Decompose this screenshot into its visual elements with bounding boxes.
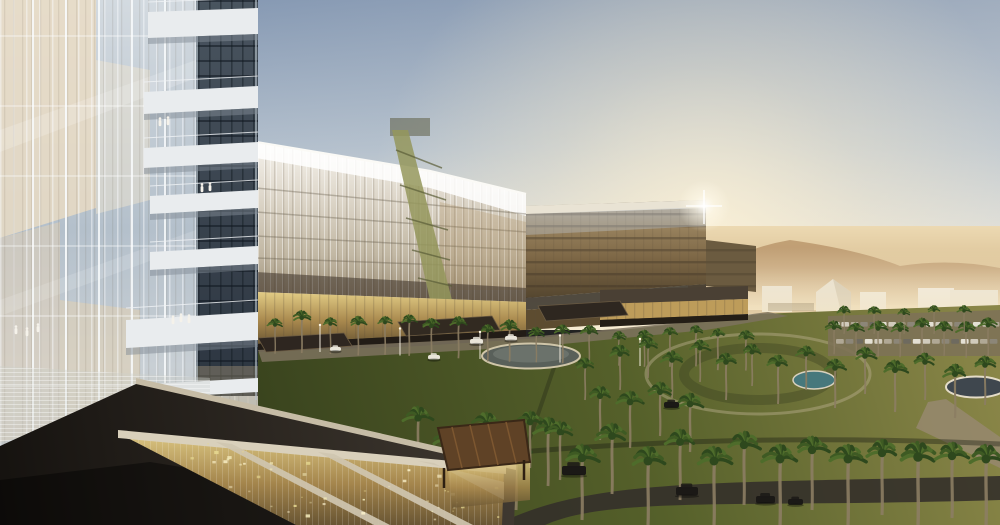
palm-trunk bbox=[895, 370, 896, 412]
person-figure bbox=[201, 183, 204, 192]
palm-crown-center bbox=[986, 323, 991, 328]
palm-trunk bbox=[925, 362, 926, 400]
figure-body bbox=[188, 317, 191, 323]
palm-trunk bbox=[560, 432, 561, 480]
palm-trunk bbox=[874, 312, 875, 334]
parked-car bbox=[903, 339, 911, 344]
light-pole-lamp bbox=[399, 327, 401, 329]
palm-crown-center bbox=[892, 367, 898, 373]
palm-crown-center bbox=[414, 414, 421, 421]
parked-car bbox=[913, 339, 921, 344]
skylight-sparkle bbox=[301, 497, 303, 498]
figure-body bbox=[26, 330, 29, 336]
skylight-sparkle bbox=[435, 484, 438, 486]
palm-crown-center bbox=[832, 365, 838, 371]
palm-crown-center bbox=[383, 320, 387, 324]
scene-canvas: architectural-rendering bbox=[0, 0, 1000, 525]
palm-crown-center bbox=[749, 349, 754, 354]
palm-trunk bbox=[778, 364, 779, 404]
skylight-sparkle bbox=[303, 473, 307, 476]
palm-trunk bbox=[690, 404, 691, 452]
palm-trunk bbox=[812, 450, 813, 510]
skylight-sparkle bbox=[364, 490, 366, 492]
skylight-sparkle bbox=[361, 512, 365, 515]
skylight-sparkle bbox=[306, 514, 310, 517]
palm-crown-center bbox=[407, 319, 411, 323]
parked-car bbox=[932, 339, 940, 344]
palm-trunk bbox=[904, 313, 905, 334]
light-pole-lamp bbox=[559, 334, 561, 336]
car-shadow bbox=[427, 358, 440, 361]
figure-body bbox=[15, 328, 18, 334]
palm-trunk bbox=[780, 459, 781, 525]
skylight-sparkle bbox=[257, 476, 261, 479]
light-pole-lamp bbox=[479, 331, 481, 333]
parked-car bbox=[865, 339, 873, 344]
car-shadow bbox=[329, 350, 341, 353]
skylight-sparkle bbox=[270, 468, 273, 470]
parked-car bbox=[841, 322, 849, 327]
palm-crown-center bbox=[486, 329, 490, 333]
figure-body bbox=[167, 119, 170, 125]
car-cabin bbox=[760, 493, 770, 497]
palm-trunk bbox=[589, 332, 590, 363]
palm-trunk bbox=[744, 445, 745, 505]
palm-crown-center bbox=[534, 332, 538, 336]
figure-head bbox=[15, 325, 18, 328]
palm-trunk bbox=[985, 365, 986, 405]
palm-crown-center bbox=[328, 322, 332, 326]
palm-crown-center bbox=[657, 389, 663, 395]
skylight-sparkle bbox=[248, 491, 250, 493]
palm-trunk bbox=[548, 430, 549, 486]
car-shadow bbox=[663, 407, 680, 410]
palm-trunk bbox=[934, 310, 935, 334]
parking-lot bbox=[828, 310, 1000, 356]
timber-pergola bbox=[438, 420, 530, 508]
car-cabin bbox=[431, 353, 437, 356]
palm-crown-center bbox=[687, 401, 694, 408]
skylight-sparkle bbox=[243, 463, 246, 465]
person-figure bbox=[15, 325, 18, 334]
palm-crown-center bbox=[872, 310, 876, 314]
skylight-sparkle bbox=[431, 511, 433, 512]
palm-crown-center bbox=[716, 333, 720, 337]
palm-crown-center bbox=[922, 359, 928, 365]
car-cabin bbox=[332, 345, 338, 347]
palm-crown-center bbox=[456, 321, 460, 325]
palm-trunk bbox=[718, 335, 719, 371]
palm-crown-center bbox=[982, 362, 988, 368]
skylight-sparkle bbox=[207, 443, 209, 444]
palm-crown-center bbox=[932, 309, 935, 312]
palm-trunk bbox=[409, 321, 410, 356]
figure-head bbox=[209, 182, 212, 185]
figure-body bbox=[180, 316, 183, 322]
palm-crown-center bbox=[962, 309, 965, 312]
palm-trunk bbox=[648, 346, 649, 378]
skylight-sparkle bbox=[229, 486, 232, 488]
palm-trunk bbox=[563, 332, 564, 364]
palm-trunk bbox=[358, 323, 359, 355]
palm-trunk bbox=[835, 368, 836, 408]
skylight-sparkle bbox=[270, 506, 272, 507]
palm-crown-center bbox=[627, 399, 634, 406]
palm-trunk bbox=[986, 459, 987, 525]
palm-crown-center bbox=[952, 371, 958, 377]
car-shadow bbox=[787, 504, 804, 507]
palm-trunk bbox=[752, 352, 753, 386]
palm-crown-center bbox=[808, 446, 816, 454]
palm-trunk bbox=[848, 459, 849, 525]
palm-trunk bbox=[856, 329, 857, 355]
skylight-sparkle bbox=[434, 519, 436, 521]
skylight-sparkle bbox=[294, 505, 297, 507]
palm-trunk bbox=[955, 374, 956, 418]
palm-crown-center bbox=[645, 343, 650, 348]
person-figure bbox=[172, 315, 175, 324]
skylight-sparkle bbox=[270, 462, 273, 464]
palm-trunk bbox=[660, 392, 661, 436]
palm-trunk bbox=[900, 330, 901, 358]
skylight-sparkle bbox=[447, 491, 449, 492]
palm-crown-center bbox=[299, 315, 304, 320]
rendering-scene: architectural-rendering bbox=[0, 0, 1000, 525]
palm-crown-center bbox=[920, 323, 925, 328]
palm-crown-center bbox=[694, 329, 698, 333]
palm-trunk bbox=[878, 328, 879, 356]
palm-trunk bbox=[726, 362, 727, 400]
palm-trunk bbox=[714, 461, 715, 525]
palm-trunk bbox=[458, 323, 459, 358]
parked-car bbox=[860, 322, 868, 327]
parked-car bbox=[990, 339, 998, 344]
palm-trunk bbox=[746, 337, 747, 370]
palm-crown-center bbox=[557, 429, 564, 436]
figure-head bbox=[159, 117, 162, 120]
palm-crown-center bbox=[507, 325, 512, 330]
person-figure bbox=[209, 182, 212, 191]
figure-body bbox=[172, 318, 175, 324]
skylight-sparkle bbox=[452, 511, 454, 512]
palm-trunk bbox=[966, 330, 967, 358]
person-figure bbox=[26, 327, 29, 336]
palm-crown-center bbox=[608, 432, 616, 440]
palm-crown-center bbox=[668, 331, 672, 335]
palm-crown-center bbox=[582, 363, 587, 368]
palm-trunk bbox=[834, 328, 835, 355]
palm-trunk bbox=[644, 337, 645, 366]
palm-crown-center bbox=[942, 327, 947, 332]
skylight-sparkle bbox=[212, 461, 215, 463]
parked-car bbox=[951, 339, 959, 344]
palm-crown-center bbox=[913, 452, 923, 462]
car-shadow bbox=[561, 474, 587, 477]
palm-crown-center bbox=[273, 323, 277, 327]
car-cabin bbox=[667, 400, 675, 403]
skylight-sparkle bbox=[190, 457, 193, 459]
palm-crown-center bbox=[617, 351, 623, 357]
palm-crown-center bbox=[982, 455, 991, 464]
palm-trunk bbox=[488, 331, 489, 362]
skylight-sparkle bbox=[323, 497, 326, 499]
skylight-sparkle bbox=[309, 502, 311, 504]
figure-head bbox=[201, 183, 204, 186]
palm-trunk bbox=[385, 322, 386, 354]
palm-trunk bbox=[630, 402, 631, 448]
palm-crown-center bbox=[560, 329, 564, 333]
car-shadow bbox=[504, 339, 517, 342]
figure-head bbox=[172, 315, 175, 318]
palm-crown-center bbox=[844, 455, 853, 464]
parked-car bbox=[846, 339, 854, 344]
palm-trunk bbox=[964, 311, 965, 334]
palm-crown-center bbox=[876, 326, 881, 331]
figure-body bbox=[209, 185, 212, 191]
skylight-sparkle bbox=[223, 460, 227, 463]
person-figure bbox=[159, 117, 162, 126]
palm-crown-center bbox=[710, 457, 719, 466]
palm-trunk bbox=[612, 436, 613, 494]
car-shadow bbox=[469, 343, 483, 346]
parked-car bbox=[836, 339, 844, 344]
car-cabin bbox=[473, 337, 480, 340]
palm-trunk bbox=[918, 457, 919, 525]
palm-crown-center bbox=[740, 441, 748, 449]
skylight-sparkle bbox=[214, 451, 218, 454]
person-figure bbox=[180, 313, 183, 322]
figure-body bbox=[201, 186, 204, 192]
car-cabin bbox=[791, 497, 799, 500]
palm-trunk bbox=[844, 312, 845, 334]
palm-crown-center bbox=[948, 452, 956, 460]
palm-crown-center bbox=[429, 324, 434, 329]
palm-trunk bbox=[536, 334, 537, 362]
palm-crown-center bbox=[617, 336, 621, 340]
palm-crown-center bbox=[878, 449, 886, 457]
palm-trunk bbox=[585, 366, 586, 400]
palm-crown-center bbox=[597, 393, 603, 399]
palm-crown-center bbox=[669, 357, 675, 363]
palm-crown-center bbox=[644, 457, 653, 466]
skylight-sparkle bbox=[403, 480, 407, 483]
palm-crown-center bbox=[527, 419, 534, 426]
skylight-sparkle bbox=[437, 475, 441, 478]
parked-car bbox=[980, 339, 988, 344]
palm-trunk bbox=[275, 325, 276, 354]
palm-trunk bbox=[952, 456, 953, 518]
light-pole-lamp bbox=[639, 338, 641, 340]
palm-crown-center bbox=[356, 321, 360, 325]
parked-car bbox=[884, 339, 892, 344]
person-figure bbox=[167, 116, 170, 125]
palm-crown-center bbox=[854, 327, 858, 331]
palm-crown-center bbox=[832, 325, 836, 329]
palm-crown-center bbox=[775, 361, 781, 367]
palm-trunk bbox=[620, 354, 621, 390]
palm-trunk bbox=[988, 325, 989, 356]
palm-trunk bbox=[865, 356, 866, 394]
car-shadow bbox=[675, 495, 699, 498]
skylight-sparkle bbox=[444, 490, 446, 491]
skylight-sparkle bbox=[323, 503, 326, 505]
palm-trunk bbox=[882, 453, 883, 515]
skylight-sparkle bbox=[438, 507, 440, 508]
skylight-sparkle bbox=[242, 451, 244, 453]
figure-body bbox=[37, 326, 40, 332]
parked-car bbox=[970, 339, 978, 344]
palm-trunk bbox=[944, 329, 945, 356]
skylight-sparkle bbox=[388, 486, 390, 487]
figure-head bbox=[167, 116, 170, 119]
palm-crown-center bbox=[803, 351, 808, 356]
figure-head bbox=[180, 313, 183, 316]
car-shadow bbox=[755, 502, 776, 505]
palm-trunk bbox=[922, 325, 923, 356]
palm-trunk bbox=[700, 348, 701, 382]
parked-car bbox=[942, 339, 950, 344]
palm-crown-center bbox=[842, 310, 846, 314]
parked-car bbox=[961, 339, 969, 344]
skylight-sparkle bbox=[497, 516, 499, 517]
car-cabin bbox=[508, 334, 514, 337]
palm-crown-center bbox=[697, 345, 702, 350]
palm-trunk bbox=[648, 461, 649, 525]
skylight-sparkle bbox=[306, 462, 310, 465]
skylight-sparkle bbox=[363, 499, 365, 501]
palm-crown-center bbox=[723, 359, 729, 365]
fountain-water bbox=[493, 346, 569, 363]
skylight-sparkle bbox=[427, 500, 429, 502]
palm-trunk bbox=[696, 331, 697, 366]
palm-crown-center bbox=[898, 327, 903, 332]
palm-trunk bbox=[672, 360, 673, 398]
figure-head bbox=[26, 327, 29, 330]
car-cabin bbox=[567, 462, 579, 467]
teal-pond bbox=[793, 371, 835, 389]
person-figure bbox=[37, 323, 40, 332]
palm-crown-center bbox=[578, 454, 586, 462]
figure-head bbox=[188, 314, 191, 317]
palm-crown-center bbox=[744, 335, 748, 339]
skylight-sparkle bbox=[227, 456, 231, 459]
palm-trunk bbox=[509, 328, 510, 362]
palm-crown-center bbox=[776, 455, 785, 464]
person-figure bbox=[188, 314, 191, 323]
figure-body bbox=[159, 120, 162, 126]
balcony-slab bbox=[148, 8, 258, 38]
palm-crown-center bbox=[902, 312, 905, 315]
palm-crown-center bbox=[676, 438, 684, 446]
skylight-sparkle bbox=[407, 469, 410, 471]
palm-trunk bbox=[806, 354, 807, 390]
palm-crown-center bbox=[587, 330, 591, 334]
skylight-sparkle bbox=[287, 511, 289, 513]
skylight-sparkle bbox=[239, 464, 242, 466]
parked-car bbox=[922, 339, 930, 344]
palm-trunk bbox=[302, 318, 303, 353]
palm-crown-center bbox=[862, 353, 868, 359]
figure-head bbox=[37, 323, 40, 326]
light-pole-lamp bbox=[319, 324, 321, 326]
side-mass-bands bbox=[706, 240, 756, 292]
car-cabin bbox=[681, 483, 692, 488]
